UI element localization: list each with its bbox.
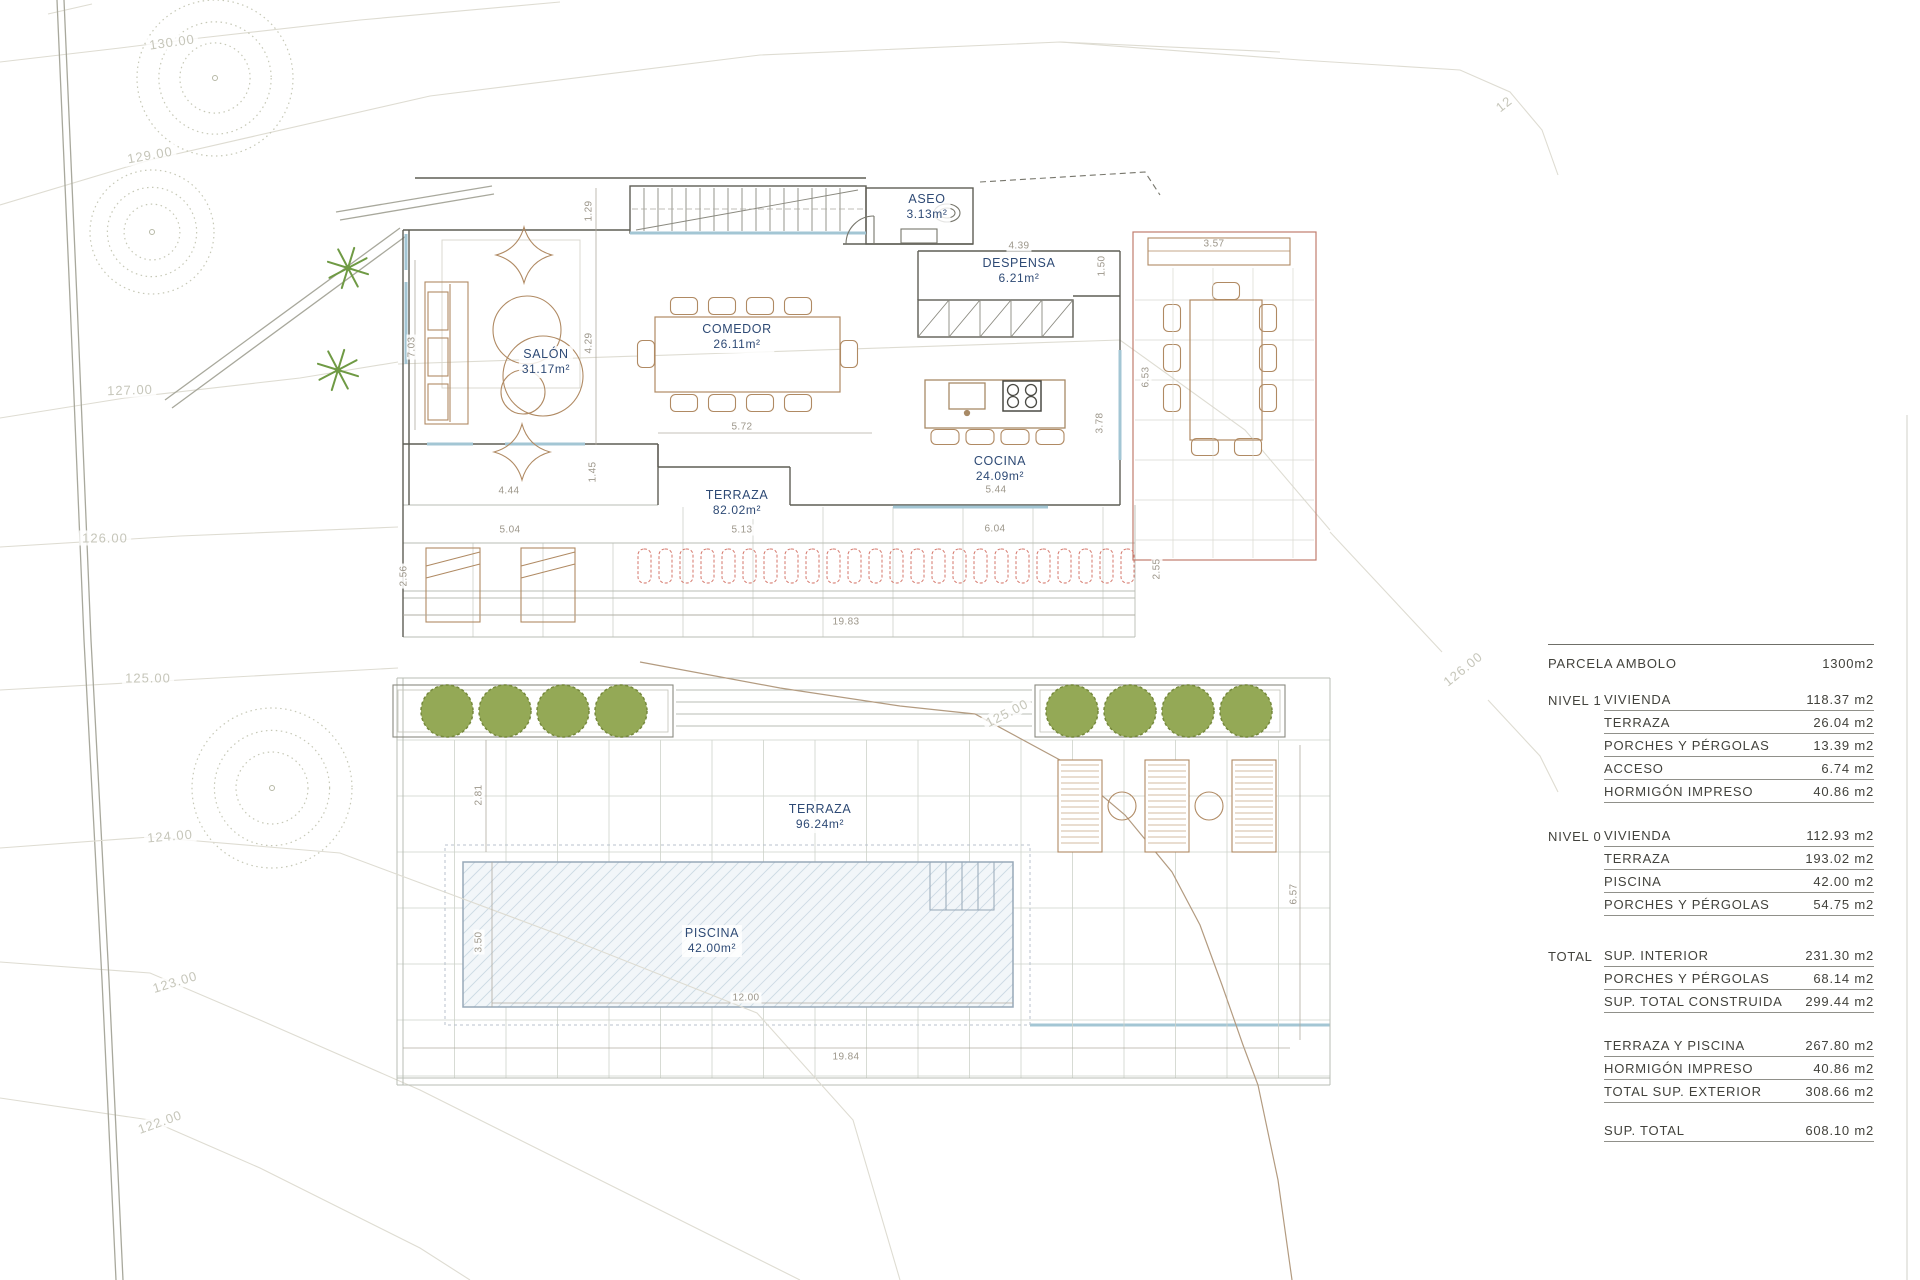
pergola-slat xyxy=(806,549,819,583)
table-row: PORCHES Y PÉRGOLAS13.39 m2 xyxy=(1548,734,1874,757)
dimension-label: 6.53 xyxy=(1141,364,1152,389)
dimension-label: 5.44 xyxy=(983,485,1008,496)
dining-chair-icon xyxy=(709,395,736,412)
kitchen-island xyxy=(925,380,1065,428)
dimension-label: 4.44 xyxy=(496,486,521,497)
group-label-nivel0: NIVEL 0 xyxy=(1548,829,1604,847)
outdoor-chair-icon xyxy=(1164,385,1181,412)
upper-terrace-loungers xyxy=(426,548,575,622)
outdoor-table-icon xyxy=(1190,300,1262,440)
tree-icon xyxy=(124,204,180,260)
pergola-slat xyxy=(953,549,966,583)
dimension-label: 1.45 xyxy=(588,459,599,484)
table-row: HORMIGÓN IMPRESO40.86 m2 xyxy=(1548,780,1874,803)
plot-boundary xyxy=(57,0,494,1280)
table-row: PISCINA42.00 m2 xyxy=(1548,870,1874,893)
outdoor-chair-icon xyxy=(1235,439,1262,456)
pergola-slat xyxy=(659,549,672,583)
dimension-label: 4.29 xyxy=(584,330,595,355)
tree-icon xyxy=(180,43,250,113)
room-label-salon: SALÓN 31.17m² xyxy=(519,346,573,378)
bushes xyxy=(421,685,1272,737)
dimension-label: 5.72 xyxy=(729,422,754,433)
dimension-label: 7.03 xyxy=(407,334,418,359)
rug-icon xyxy=(496,227,552,283)
table-row: TERRAZA Y PISCINA267.80 m2 xyxy=(1548,1034,1874,1057)
pool-lounger-icon xyxy=(1145,760,1189,852)
staircase xyxy=(632,188,864,231)
rug-icon xyxy=(494,424,550,480)
table-row: SUP. TOTAL608.10 m2 xyxy=(1548,1119,1874,1142)
tree-icon xyxy=(90,170,214,294)
cooktop-icon xyxy=(1003,381,1041,411)
pergola-slat xyxy=(911,549,924,583)
bush-icon xyxy=(479,685,531,737)
pergola-slat xyxy=(1037,549,1050,583)
pergola-slat xyxy=(1079,549,1092,583)
dimension-label: 3.50 xyxy=(474,929,485,954)
bathroom-fixtures xyxy=(846,172,1160,244)
bar-stool-icon xyxy=(931,430,959,445)
dining-chair-icon xyxy=(841,341,858,368)
pool-lounger-icon xyxy=(1232,760,1276,852)
dining-chair-icon xyxy=(785,395,812,412)
pergola-slat xyxy=(1121,549,1134,583)
table-top-rule xyxy=(1548,644,1874,645)
dimension-label: 19.84 xyxy=(830,1052,861,1063)
porch-outline xyxy=(1133,232,1316,560)
pergola-slat xyxy=(1016,549,1029,583)
pool-lounger-icon xyxy=(1058,760,1102,852)
sink-icon xyxy=(949,383,985,409)
tree-icon xyxy=(192,708,352,868)
table-row: NIVEL 0 VIVIENDA112.93 m2 xyxy=(1548,824,1874,847)
pantry-shelving xyxy=(918,300,1073,337)
tree-icon xyxy=(107,187,196,276)
contour-label: 127.00 xyxy=(104,382,156,399)
pergola-slat xyxy=(722,549,735,583)
pergola-slat xyxy=(1058,549,1071,583)
group-label-nivel1: NIVEL 1 xyxy=(1548,693,1604,711)
room-label-comedor: COMEDOR 26.11m² xyxy=(699,321,774,353)
site-plan-canvas: 130.00 129.00 127.00 126.00 125.00 124.0… xyxy=(0,0,1920,1280)
pergola-slat xyxy=(764,549,777,583)
dining-chair-icon xyxy=(747,395,774,412)
bush-icon xyxy=(595,685,647,737)
contour-lines xyxy=(0,2,1558,1280)
dimension-label: 5.04 xyxy=(497,525,522,536)
room-label-terraza-96: TERRAZA 96.24m² xyxy=(786,801,855,833)
bush-icon xyxy=(537,685,589,737)
pergola-slat xyxy=(869,549,882,583)
dimension-label: 5.13 xyxy=(729,525,754,536)
pergola-slat xyxy=(680,549,693,583)
bush-icon xyxy=(1046,685,1098,737)
room-label-despensa: DESPENSA 6.21m² xyxy=(980,255,1059,287)
room-label-terraza-82: TERRAZA 82.02m² xyxy=(703,487,772,519)
dimension-label: 1.50 xyxy=(1097,253,1108,278)
dining-chair-icon xyxy=(785,298,812,315)
porch-paving-grid xyxy=(1135,268,1314,558)
trees xyxy=(90,0,352,868)
dimension-label: 3.57 xyxy=(1201,239,1226,250)
bar-stool-icon xyxy=(1001,430,1029,445)
dining-chair-icon xyxy=(638,341,655,368)
dimension-label: 6.57 xyxy=(1289,881,1300,906)
bush-icon xyxy=(1220,685,1272,737)
dining-chair-icon xyxy=(747,298,774,315)
pergola-slats xyxy=(638,549,1134,583)
table-row: HORMIGÓN IMPRESO40.86 m2 xyxy=(1548,1057,1874,1080)
group-label-total: TOTAL xyxy=(1548,949,1604,967)
dimension-label: 2.56 xyxy=(399,563,410,588)
door-swing-arc xyxy=(846,216,874,244)
room-label-cocina: COCINA 24.09m² xyxy=(971,453,1029,485)
outdoor-chair-icon xyxy=(1213,283,1240,300)
outdoor-chair-icon xyxy=(1192,439,1219,456)
pergola-slat xyxy=(827,549,840,583)
pergola-slat xyxy=(785,549,798,583)
dimension-label: 1.29 xyxy=(584,198,595,223)
tree-icon xyxy=(236,752,308,824)
pergola-slat xyxy=(932,549,945,583)
bush-icon xyxy=(421,685,473,737)
table-row: TERRAZA193.02 m2 xyxy=(1548,847,1874,870)
bar-stool-icon xyxy=(1036,430,1064,445)
sink-icon xyxy=(901,229,937,243)
dimension-label: 2.55 xyxy=(1152,556,1163,581)
pergola-slat xyxy=(701,549,714,583)
table-row: PARCELA AMBOLO 1300m2 xyxy=(1548,649,1874,674)
pergola-slat xyxy=(974,549,987,583)
parcel-value: 1300m2 xyxy=(1822,656,1874,671)
dimension-label: 2.81 xyxy=(474,782,485,807)
table-row: TOTAL SUP. INTERIOR231.30 m2 xyxy=(1548,944,1874,967)
pool-loungers xyxy=(1058,760,1276,852)
pergola-slat xyxy=(890,549,903,583)
table-row: TOTAL SUP. EXTERIOR308.66 m2 xyxy=(1548,1080,1874,1103)
bush-icon xyxy=(1104,685,1156,737)
tree-icon xyxy=(214,730,329,845)
dimension-label: 12.00 xyxy=(730,993,761,1004)
room-label-piscina: PISCINA 42.00m² xyxy=(682,925,742,957)
dining-chair-icon xyxy=(671,395,698,412)
contour-label: 126.00 xyxy=(79,531,131,546)
table-row: ACCESO6.74 m2 xyxy=(1548,757,1874,780)
room-label-aseo: ASEO 3.13m² xyxy=(904,191,951,223)
area-summary-table: PARCELA AMBOLO 1300m2 NIVEL 1 VIVIENDA11… xyxy=(1548,644,1874,1142)
dimension-label: 6.04 xyxy=(982,524,1007,535)
parcel-label: PARCELA AMBOLO xyxy=(1548,656,1677,671)
table-row: NIVEL 1 VIVIENDA118.37 m2 xyxy=(1548,688,1874,711)
bar-stool-icon xyxy=(966,430,994,445)
dimension-label: 3.78 xyxy=(1095,410,1106,435)
pergola-slat xyxy=(743,549,756,583)
table-row: TERRAZA26.04 m2 xyxy=(1548,711,1874,734)
pergola-slat xyxy=(638,549,651,583)
outdoor-chair-icon xyxy=(1164,345,1181,372)
bush-icon xyxy=(1162,685,1214,737)
dining-chair-icon xyxy=(671,298,698,315)
contour-label: 125.00 xyxy=(122,671,174,686)
table-row: PORCHES Y PÉRGOLAS54.75 m2 xyxy=(1548,893,1874,916)
table-row: PORCHES Y PÉRGOLAS68.14 m2 xyxy=(1548,967,1874,990)
pergola-slat xyxy=(995,549,1008,583)
sofa-icon xyxy=(425,282,468,424)
pergola-slat xyxy=(1100,549,1113,583)
dining-chair-icon xyxy=(709,298,736,315)
pergola-slat xyxy=(848,549,861,583)
dimension-label: 4.39 xyxy=(1006,241,1031,252)
dimension-label: 19.83 xyxy=(830,617,861,628)
table-row: SUP. TOTAL CONSTRUIDA299.44 m2 xyxy=(1548,990,1874,1013)
outdoor-chair-icon xyxy=(1164,305,1181,332)
